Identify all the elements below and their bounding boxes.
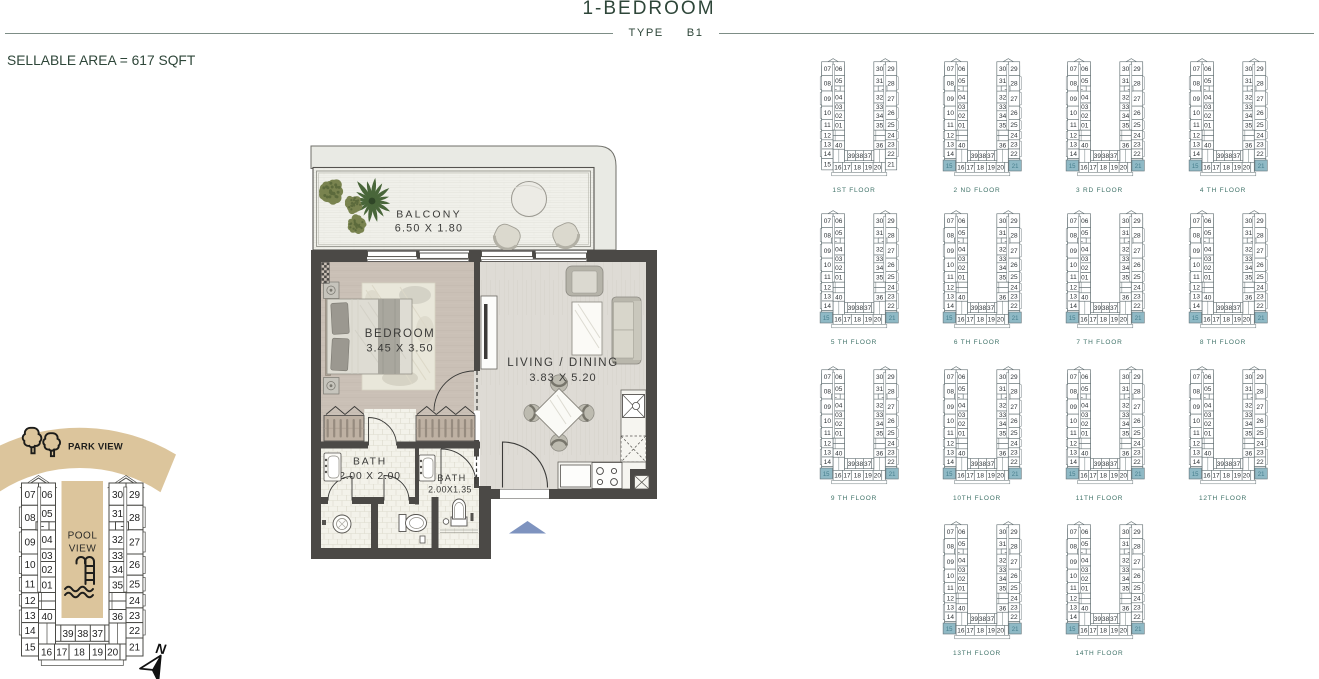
svg-text:13: 13 [24,611,36,622]
svg-text:25: 25 [129,580,141,591]
svg-text:01: 01 [41,580,53,591]
svg-text:N: N [155,640,168,657]
svg-text:PARK VIEW: PARK VIEW [68,442,123,453]
svg-text:37: 37 [92,629,104,640]
svg-text:19: 19 [92,648,104,659]
svg-text:28: 28 [129,513,141,524]
svg-text:29: 29 [129,490,141,501]
svg-text:3.45 X 3.50: 3.45 X 3.50 [366,343,433,355]
svg-text:BATH: BATH [353,457,387,468]
svg-text:05: 05 [41,509,53,520]
svg-text:3.83 X 5.20: 3.83 X 5.20 [529,372,596,384]
svg-text:27: 27 [129,538,141,549]
svg-text:26: 26 [129,560,141,571]
svg-text:10: 10 [24,560,36,571]
svg-text:24: 24 [129,596,141,607]
svg-text:34: 34 [112,565,124,576]
svg-text:09: 09 [24,538,36,549]
svg-text:BATH: BATH [437,473,466,483]
svg-text:22: 22 [129,626,141,637]
svg-text:30: 30 [112,490,124,501]
svg-text:21: 21 [129,643,141,654]
svg-text:18: 18 [74,648,86,659]
svg-text:23: 23 [129,611,141,622]
svg-text:-: - [41,522,44,533]
svg-text:POOL: POOL [68,531,98,542]
svg-text:08: 08 [24,513,36,524]
svg-text:-: - [120,522,123,533]
svg-text:BALCONY: BALCONY [396,209,462,221]
svg-text:07: 07 [24,490,36,501]
svg-text:04: 04 [41,535,53,546]
svg-text:VIEW: VIEW [69,544,97,555]
svg-text:2.00 X 2.00: 2.00 X 2.00 [339,471,400,482]
svg-text:14: 14 [24,626,36,637]
svg-text:16: 16 [41,648,53,659]
svg-text:38: 38 [77,629,89,640]
svg-text:32: 32 [112,535,124,546]
svg-text:35: 35 [112,580,124,591]
svg-text:02: 02 [41,565,53,576]
svg-text:40: 40 [41,612,53,623]
svg-text:06: 06 [41,490,53,501]
svg-text:20: 20 [107,648,119,659]
svg-text:BEDROOM: BEDROOM [365,328,436,340]
svg-text:03: 03 [41,551,53,562]
svg-text:33: 33 [112,551,124,562]
svg-text:11: 11 [25,580,36,591]
svg-text:LIVING / DINING: LIVING / DINING [507,357,619,369]
svg-text:36: 36 [112,612,124,623]
svg-text:39: 39 [62,629,74,640]
svg-text:31: 31 [112,509,124,520]
svg-text:15: 15 [24,643,36,654]
svg-text:12: 12 [24,596,36,607]
svg-text:6.50 X 1.80: 6.50 X 1.80 [395,223,463,235]
svg-text:2.00X1.35: 2.00X1.35 [428,485,472,495]
svg-text:17: 17 [56,648,68,659]
